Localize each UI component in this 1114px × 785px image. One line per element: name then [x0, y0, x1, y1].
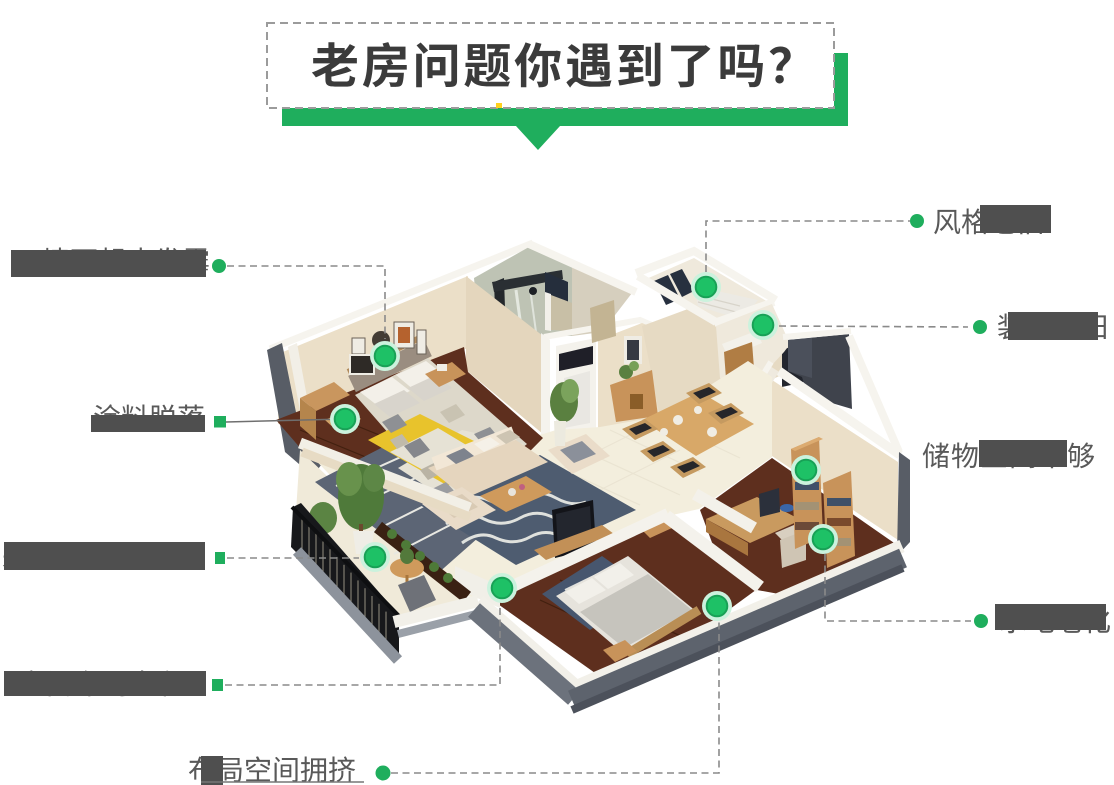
svg-text:老房问题你遇到了吗？: 老房问题你遇到了吗？ — [311, 27, 819, 97]
